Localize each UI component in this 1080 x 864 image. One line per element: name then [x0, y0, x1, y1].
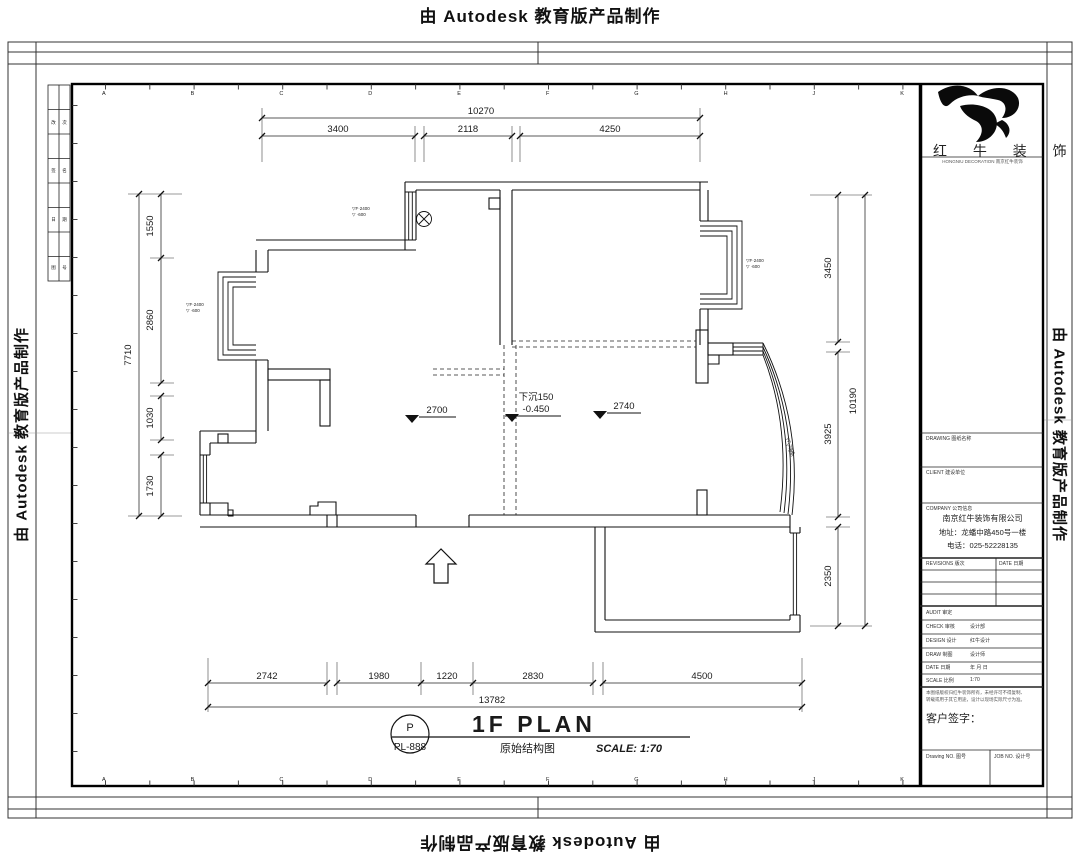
field-value: 设计师 [970, 651, 985, 658]
field-label: DATE 日期 [926, 664, 950, 671]
dim-left-total: 7710 [123, 344, 134, 365]
svg-text:图: 图 [51, 265, 56, 271]
svg-text:改: 改 [51, 119, 56, 126]
svg-text:▽ ·600: ▽ ·600 [186, 308, 200, 313]
svg-text:2350: 2350 [823, 565, 834, 586]
dimension-lines [139, 118, 865, 707]
dim-top-total: 10270 [468, 106, 494, 117]
drawing-no-cell: Drawing NO. 图号 [926, 753, 966, 760]
svg-text:号: 号 [62, 265, 67, 271]
ceiling-height-left: 2700 [426, 405, 447, 416]
svg-text:2830: 2830 [522, 671, 543, 682]
plan-scale: SCALE: 1:70 [596, 743, 663, 755]
field-value: 年 月 日 [970, 664, 988, 671]
field-value: 红牛设计 [970, 637, 990, 644]
svg-text:▽F·2400: ▽F·2400 [746, 258, 764, 263]
dimension-labels: 10270 3400 2118 4250 7710 1550 2860 1030… [123, 106, 859, 706]
plan-subtitle: 原始结构图 [500, 741, 555, 755]
plan-title-bar: P PL-888 1F PLAN 原始结构图 SCALE: 1:70 [391, 711, 690, 755]
titleblock-note-line1: 本图纸版权归红牛装饰所有，未经许可不得复制、 [926, 690, 1025, 696]
dim-right-total: 10190 [848, 388, 859, 414]
watermark-bottom: 由 Autodesk 教育版产品制作 [0, 832, 1080, 857]
date-col-header: DATE 日期 [999, 560, 1023, 567]
svg-text:4250: 4250 [599, 124, 620, 135]
svg-text:1030: 1030 [145, 407, 156, 428]
plan-dashed-lines [433, 341, 696, 515]
revision-strip-table [48, 85, 70, 281]
titleblock-row3-label: COMPANY 公司信息 [926, 505, 972, 512]
plan-walls [200, 182, 800, 632]
cad-sheet: ABCDEFGHJK ABCDEFGHJK 改次 签名 日期 图号 [0, 0, 1080, 864]
customer-signature-label: 客户签字： [926, 710, 981, 726]
svg-text:▽ ·600: ▽ ·600 [746, 264, 760, 269]
svg-text:1550: 1550 [145, 215, 156, 236]
svg-text:期: 期 [62, 217, 67, 223]
svg-text:4500: 4500 [691, 671, 712, 682]
sunken-label: 下沉150 [519, 392, 554, 403]
svg-text:▽F·2400: ▽F·2400 [352, 206, 370, 211]
ceiling-height-right: 2740 [613, 401, 634, 412]
titleblock-row2-label: CLIENT 建设单位 [926, 469, 965, 476]
field-value: 设计部 [970, 623, 985, 630]
svg-text:2118: 2118 [458, 124, 478, 135]
drawing-linework: ABCDEFGHJK ABCDEFGHJK 改次 签名 日期 图号 [0, 0, 1080, 864]
svg-text:3450: 3450 [823, 257, 834, 278]
titleblock-row1-label: DRAWING 图纸名称 [926, 435, 971, 442]
field-label: DESIGN 设计 [926, 637, 957, 644]
company-logo-title: 红 牛 装 饰 [922, 141, 1043, 161]
north-arrow [426, 549, 456, 583]
svg-text:签: 签 [51, 167, 56, 173]
detail-bubble-number: PL-888 [394, 742, 427, 753]
svg-text:1730: 1730 [145, 475, 156, 496]
company-logo-subtitle: HONGNIU DECORATION 南京红牛装饰 [922, 159, 1043, 165]
watermark-top: 由 Autodesk 教育版产品制作 [0, 2, 1080, 27]
watermark-left: 由 Autodesk 教育版产品制作 [11, 285, 32, 585]
svg-text:1220: 1220 [436, 671, 457, 682]
grid-letters-bottom: ABCDEFGHJK [102, 777, 989, 783]
dimension-tick-slashes [136, 115, 868, 710]
company-phone: 电话：025-52228135 [922, 540, 1043, 551]
watermark-right: 由 Autodesk 教育版产品制作 [1050, 285, 1071, 585]
svg-text:1980: 1980 [368, 671, 389, 682]
svg-text:▽ ·600: ▽ ·600 [352, 212, 366, 217]
dim-bottom-total: 13782 [479, 695, 505, 706]
job-no-cell: JOB NO. 设计号 [994, 753, 1030, 760]
svg-text:名: 名 [62, 167, 67, 174]
svg-text:次: 次 [62, 119, 67, 126]
svg-text:2860: 2860 [145, 309, 156, 330]
window-annotations: ▽F·2400 ▽ ·600 ▽F·2400 ▽ ·600 ▽F·2400 ▽ … [186, 206, 796, 458]
flue-symbol [417, 212, 432, 227]
sheet-borders [8, 42, 1072, 818]
sunken-level: -0.450 [523, 404, 550, 415]
titleblock-note-line2: 转载或用于其它用途，设计以现场实际尺寸为准。 [926, 697, 1025, 703]
svg-text:日: 日 [51, 217, 56, 223]
svg-text:3400: 3400 [327, 124, 348, 135]
plan-title: 1F PLAN [472, 711, 596, 737]
company-address: 地址：龙蟠中路450号一楼 [922, 527, 1043, 538]
field-label: AUDIT 审定 [926, 609, 952, 616]
svg-text:3925: 3925 [823, 423, 834, 444]
field-label: DRAW 制图 [926, 651, 952, 658]
detail-bubble-letter: P [406, 722, 413, 734]
svg-text:2742: 2742 [256, 671, 277, 682]
field-label: SCALE 比例 [926, 677, 954, 684]
grid-letters-top: ABCDEFGHJK [102, 91, 989, 97]
svg-text:▽F·2400: ▽F·2400 [186, 302, 204, 307]
field-value: 1:70 [970, 677, 980, 683]
rev-col-header: REVISIONS 版次 [926, 560, 965, 567]
field-label: CHECK 审核 [926, 623, 955, 630]
company-name: 南京红牛装饰有限公司 [922, 513, 1043, 524]
